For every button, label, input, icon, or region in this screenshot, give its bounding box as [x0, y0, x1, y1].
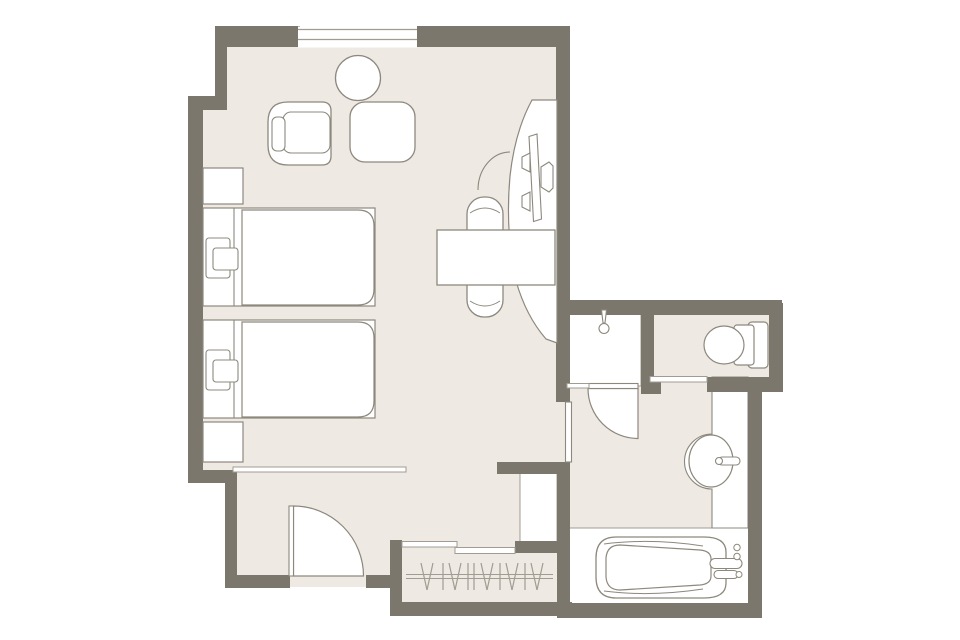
bed-2-mattress — [242, 322, 374, 417]
closet-slider-panel-b — [455, 548, 515, 554]
carpet-edge-strip — [233, 467, 406, 472]
wall-top-left — [215, 26, 300, 47]
floor-plan-canvas — [0, 0, 960, 640]
bathtub-knob-2 — [734, 553, 740, 559]
wall-entry-bottom-a — [225, 575, 290, 588]
round-table — [336, 56, 381, 101]
wall-bedroom-right — [556, 26, 570, 402]
wall-left — [188, 96, 203, 483]
wall-bedroom-south-stub — [497, 462, 570, 474]
bathtub-knob-3 — [736, 572, 742, 578]
bathtub-knob-1 — [734, 544, 740, 550]
closet-slider-panel-a — [402, 542, 457, 548]
hotel-room-floor-plan — [0, 0, 960, 640]
wall-bathroom-bottom — [557, 603, 762, 618]
lounge-chair-seat — [283, 112, 330, 153]
wall-toilet-bottom — [707, 377, 783, 392]
tv-bracket-b — [522, 192, 530, 211]
wall-shower-corner-stub — [641, 382, 661, 394]
entry-door-leaf — [289, 506, 294, 576]
bed-1-lamp-inner — [213, 248, 238, 270]
nightstand-1 — [203, 168, 243, 204]
tv-bracket-a — [522, 153, 530, 172]
wall-closet-bath-divider — [557, 462, 570, 618]
bed-1-mattress — [242, 210, 374, 305]
layer-window — [298, 27, 417, 48]
wall-entry-left — [225, 470, 237, 588]
wall-bathroom-top — [556, 300, 782, 315]
desk — [437, 230, 555, 285]
toilet-bowl — [704, 326, 744, 364]
bathroom-entry-panel — [566, 402, 572, 462]
bathtub-basin — [606, 545, 711, 590]
bed-2-lamp-inner — [213, 360, 238, 382]
bathtub-handle-2 — [714, 571, 738, 579]
shower-head-arm — [602, 310, 607, 323]
service-void — [520, 472, 557, 543]
wall-bathroom-right — [748, 377, 762, 618]
sink-faucet-base — [716, 458, 723, 465]
toilet-door-track — [650, 377, 707, 383]
bathroom-door-leaf — [588, 384, 638, 389]
wall-top-right — [417, 26, 570, 47]
wall-upper-left — [215, 26, 227, 102]
nightstand-2 — [203, 422, 243, 462]
side-table — [350, 102, 415, 162]
lounge-chair-arm — [272, 117, 285, 151]
wall-closet-bottom — [390, 602, 572, 616]
tv-mount-hub — [541, 162, 553, 192]
shower-head — [599, 324, 609, 334]
shower-glass-panel — [567, 384, 589, 389]
